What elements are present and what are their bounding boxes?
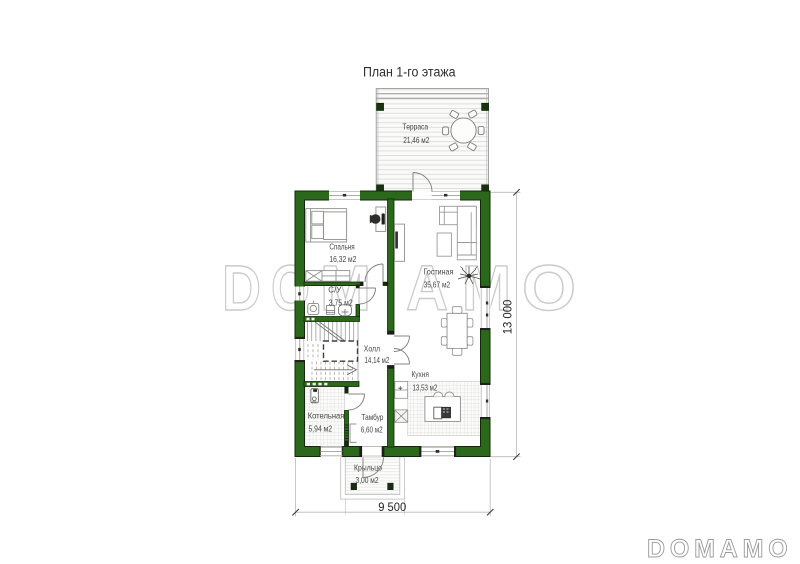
- svg-text:Тамбур: Тамбур: [362, 412, 384, 422]
- svg-text:3,00 м2: 3,00 м2: [356, 475, 379, 485]
- svg-text:План 1-го этажа: План 1-го этажа: [363, 65, 456, 80]
- svg-text:DOMAMO: DOMAMO: [647, 535, 792, 563]
- svg-text:D: D: [222, 252, 261, 324]
- svg-text:Котельная: Котельная: [308, 410, 345, 420]
- svg-text:6,60 м2: 6,60 м2: [361, 424, 383, 434]
- svg-text:С/У: С/У: [328, 284, 342, 294]
- svg-text:35,67 м2: 35,67 м2: [424, 279, 451, 289]
- svg-text:Гостиная: Гостиная: [424, 266, 454, 276]
- svg-text:21,46 м2: 21,46 м2: [403, 135, 429, 145]
- svg-text:Терраса: Терраса: [403, 122, 429, 132]
- svg-text:Кухня: Кухня: [412, 369, 430, 379]
- svg-text:Холл: Холл: [364, 343, 380, 353]
- svg-text:9 500: 9 500: [378, 502, 406, 514]
- svg-text:13,53 м2: 13,53 м2: [413, 383, 438, 393]
- svg-text:Спальня: Спальня: [329, 241, 355, 251]
- svg-text:5,94 м2: 5,94 м2: [309, 424, 333, 434]
- svg-text:16,32 м2: 16,32 м2: [329, 254, 356, 264]
- svg-text:13 000: 13 000: [503, 300, 515, 335]
- svg-text:3,75 м2: 3,75 м2: [329, 298, 353, 308]
- svg-text:O: O: [522, 252, 576, 324]
- svg-text:14,14 м2: 14,14 м2: [365, 355, 390, 365]
